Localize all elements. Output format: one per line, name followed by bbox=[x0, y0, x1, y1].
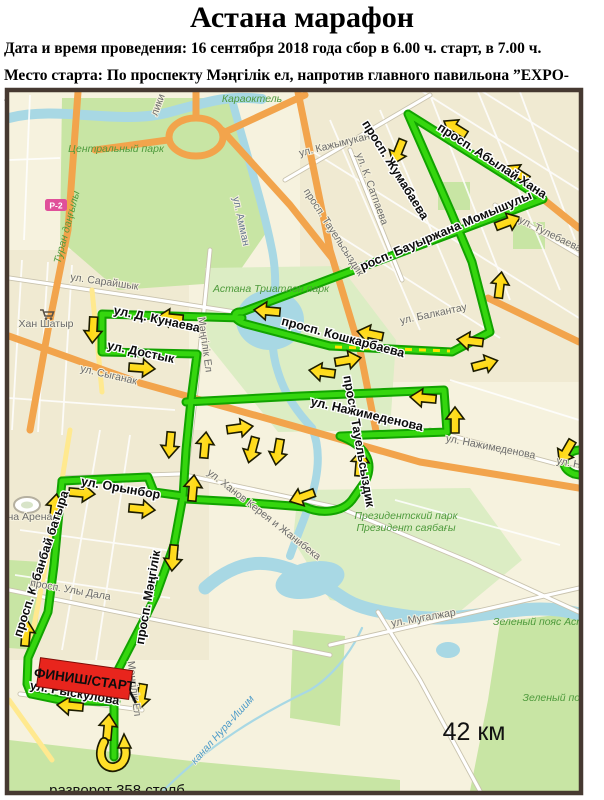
marathon-map-page: Астана марафон Дата и время проведения: … bbox=[0, 0, 604, 800]
park-label-president-kz: Президент саябағы bbox=[356, 522, 455, 534]
turnaround-annotation: разворот 358 столб bbox=[49, 782, 185, 799]
park-label-central: Центральный парк bbox=[68, 143, 165, 155]
park-label-triatlon: Астана Триатлон парк bbox=[212, 283, 330, 295]
park-label-president: Президентский парк bbox=[354, 510, 458, 522]
route-map: Караоктель Центральный парк Туран даңғыл… bbox=[0, 0, 604, 800]
road-badge-r2: Р-2 bbox=[45, 199, 67, 211]
place-label-karaotkel: Караоктель bbox=[222, 93, 282, 105]
road-badge-text: Р-2 bbox=[49, 201, 63, 211]
distance-annotation: 42 км bbox=[443, 718, 506, 746]
area-label-green-belt: Зеленый пояс Аст bbox=[493, 616, 585, 628]
area-label-green-belt-2: Зеленый поя bbox=[523, 692, 586, 704]
